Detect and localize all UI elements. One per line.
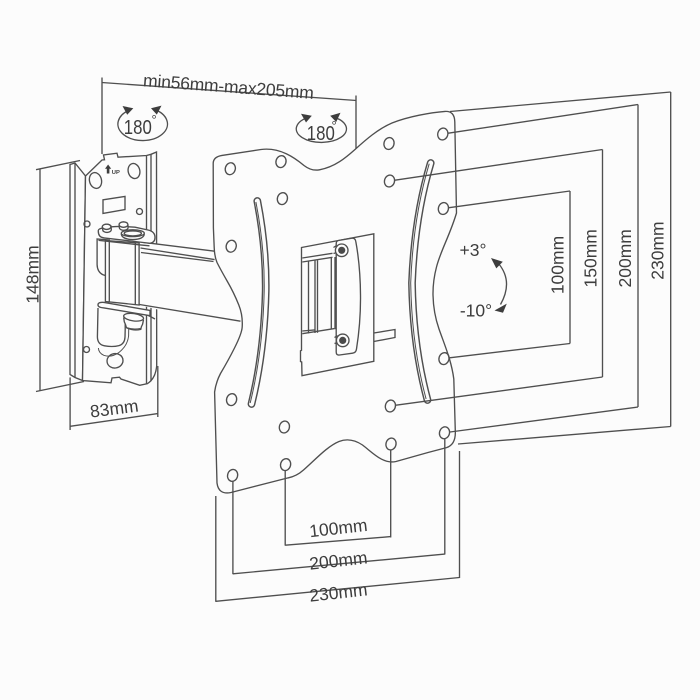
svg-text:+3°: +3° (460, 240, 487, 260)
svg-text:UP: UP (112, 170, 120, 176)
svg-text:230mm: 230mm (648, 221, 668, 279)
svg-text:°: ° (152, 112, 157, 127)
svg-text:150mm: 150mm (581, 229, 601, 287)
svg-text:°: ° (332, 118, 337, 133)
svg-text:148mm: 148mm (23, 245, 43, 303)
svg-text:180: 180 (124, 116, 152, 139)
svg-text:100mm: 100mm (547, 236, 567, 294)
svg-text:-10°: -10° (460, 301, 492, 321)
svg-text:200mm: 200mm (615, 229, 635, 287)
